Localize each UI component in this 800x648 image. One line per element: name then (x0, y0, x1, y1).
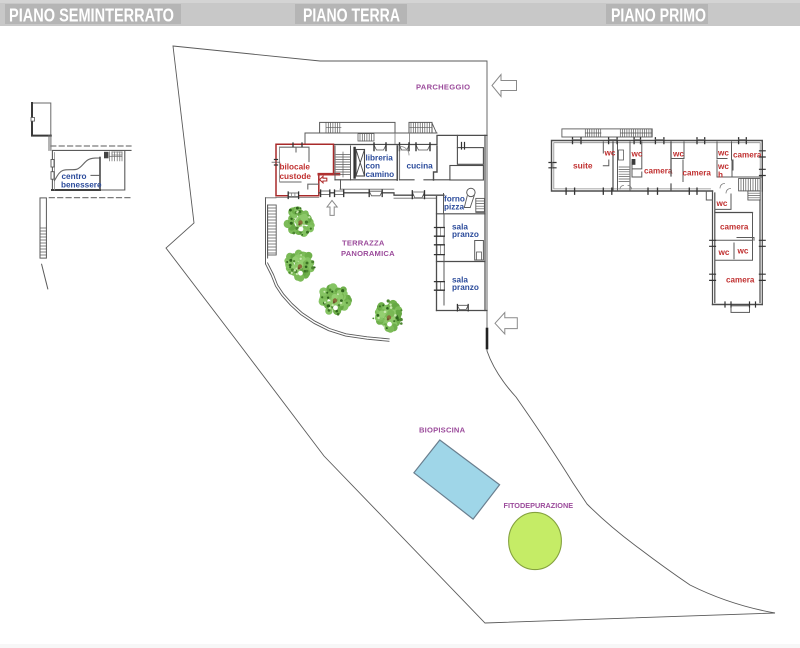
svg-text:PARCHEGGIO: PARCHEGGIO (416, 83, 470, 92)
svg-text:wc: wc (631, 150, 643, 159)
svg-text:wc: wc (737, 247, 749, 256)
svg-text:FITODEPURAZIONE: FITODEPURAZIONE (504, 501, 574, 510)
svg-text:wc: wc (672, 150, 684, 159)
svg-text:wc: wc (716, 199, 728, 208)
svg-text:bilocale: bilocale (280, 163, 311, 172)
svg-text:camera: camera (733, 151, 762, 160)
svg-text:PIANO SEMINTERRATO: PIANO SEMINTERRATO (9, 6, 174, 26)
svg-text:wc: wc (718, 248, 730, 257)
svg-text:camera: camera (683, 169, 712, 178)
svg-text:camera: camera (720, 223, 749, 232)
svg-text:camino: camino (366, 170, 395, 179)
svg-text:cucina: cucina (407, 161, 434, 171)
svg-text:PANORAMICA: PANORAMICA (341, 249, 395, 258)
svg-text:pranzo: pranzo (452, 230, 479, 239)
svg-text:PIANO PRIMO: PIANO PRIMO (611, 6, 706, 26)
svg-text:PIANO TERRA: PIANO TERRA (303, 6, 400, 26)
svg-text:BIOPISCINA: BIOPISCINA (419, 426, 466, 435)
svg-text:custode: custode (280, 172, 312, 181)
svg-text:wc: wc (717, 149, 729, 158)
svg-text:pizza: pizza (444, 203, 464, 212)
svg-text:pranzo: pranzo (452, 283, 479, 292)
svg-text:wc: wc (604, 149, 616, 158)
svg-text:suite: suite (573, 160, 593, 170)
svg-text:benessere: benessere (61, 180, 102, 189)
svg-text:TERRAZZA: TERRAZZA (342, 239, 385, 248)
svg-text:camera: camera (726, 276, 755, 285)
svg-text:camera: camera (644, 167, 673, 176)
svg-text:h: h (718, 171, 723, 180)
